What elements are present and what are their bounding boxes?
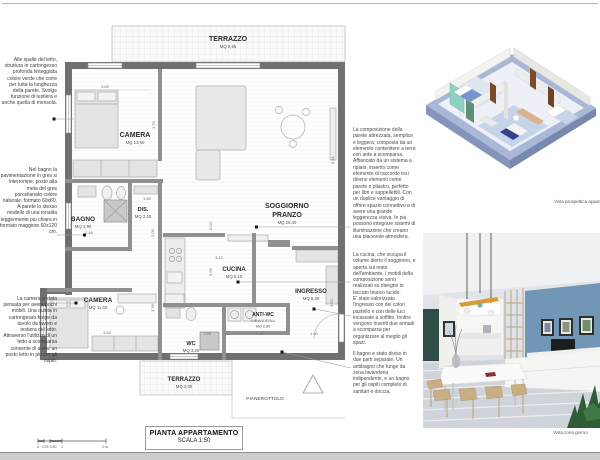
dimension-label: 2.00 bbox=[150, 228, 155, 237]
paragraph-bagno: Il bagno e stato diviso in due parti sep… bbox=[353, 351, 416, 395]
caption-interior: Vista zona giorno bbox=[553, 430, 588, 435]
dimension-label: 5.95 bbox=[208, 267, 213, 276]
svg-text:MQ 2,50: MQ 2,50 bbox=[256, 325, 271, 329]
room-label-bagno: BAGNO bbox=[71, 216, 95, 223]
stair-direction-triangle bbox=[303, 375, 323, 393]
dimension-label: 3.50 bbox=[329, 298, 334, 307]
dimension-label: 3.70 bbox=[151, 120, 156, 129]
caption-perspective: Vista prospettica appartamento bbox=[554, 199, 600, 204]
sheet-scale: SCALA 1:50 bbox=[146, 438, 242, 444]
svg-text:LAVANDERIA: LAVANDERIA bbox=[251, 319, 275, 323]
room-label-terrazzo-bottom: TERRAZZO bbox=[168, 377, 201, 383]
room-label-wc: WC bbox=[186, 341, 195, 347]
annotation-camera: La camera e stata pensata per avere poch… bbox=[0, 296, 57, 364]
dimension-label: 1.50 bbox=[310, 331, 319, 336]
dimension-label: 1.50 bbox=[143, 196, 152, 201]
annotation-bagno: Nel bagno la pavimentazione in gres si i… bbox=[0, 167, 57, 237]
svg-text:MQ 13,50: MQ 13,50 bbox=[126, 140, 145, 145]
annotation-headboard: Alle spalle del letto, struttura in cart… bbox=[0, 57, 57, 123]
svg-text:MQ 6,10: MQ 6,10 bbox=[226, 274, 243, 279]
dimension-label: 3.12 bbox=[215, 255, 224, 260]
room-label-terrazzo-top: TERRAZZO bbox=[209, 36, 248, 43]
room-label-soggiorno: SOGGIORNO bbox=[265, 203, 310, 210]
svg-text:MQ 3,20: MQ 3,20 bbox=[183, 348, 200, 353]
svg-text:MQ 8,95: MQ 8,95 bbox=[220, 44, 237, 49]
interior-render bbox=[423, 233, 600, 428]
room-label-ingresso: INGRESSO bbox=[295, 289, 327, 295]
room-label-cucina: CUCINA bbox=[222, 267, 246, 273]
svg-text:2 m: 2 m bbox=[102, 445, 108, 449]
svg-text:MQ 2,20: MQ 2,20 bbox=[135, 214, 152, 219]
dimension-label: 8.41 bbox=[330, 155, 335, 164]
presentation-sheet: TERRAZZO MQ 8,95 CAMERA MQ 13,50 SOGGIOR… bbox=[0, 0, 600, 460]
room-label-camera1: CAMERA bbox=[120, 132, 151, 139]
dimension-label: 3.65 bbox=[101, 84, 110, 89]
room-label-antiwc: ANTI-WC bbox=[252, 312, 274, 318]
dimension-label: 5.00 bbox=[208, 221, 213, 230]
room-label-pianerottolo: PIANEROTTOLO bbox=[246, 396, 284, 402]
sheet-title: PIANTA APPARTAMENTO bbox=[146, 430, 242, 437]
landing-outline bbox=[232, 361, 345, 418]
dimension-label: 1.98 bbox=[203, 331, 212, 336]
sheet-bottom-bar bbox=[0, 452, 600, 460]
svg-text:PRANZO: PRANZO bbox=[272, 212, 302, 219]
svg-text:MQ 5,30: MQ 5,30 bbox=[303, 296, 320, 301]
paragraph-cucina: La cucina, che occupa il volume dietro i… bbox=[353, 252, 416, 296]
paragraph-ingresso: E' stato valorizzato l'ingresso con dei … bbox=[353, 296, 416, 346]
svg-text:MQ 2,05: MQ 2,05 bbox=[176, 384, 193, 389]
title-block: PIANTA APPARTAMENTO SCALA 1:50 bbox=[145, 426, 243, 450]
perspective-render bbox=[420, 8, 600, 196]
svg-text:MQ 28,40: MQ 28,40 bbox=[278, 220, 297, 225]
dimension-label: 2,45 bbox=[85, 230, 94, 235]
svg-text:0,50: 0,50 bbox=[50, 445, 57, 449]
svg-text:0: 0 bbox=[37, 445, 39, 449]
dimension-label: 3.36 bbox=[150, 303, 155, 312]
svg-text:1: 1 bbox=[61, 445, 63, 449]
paragraph-parete-attrezzata: La composizione della parete attrezzata,… bbox=[353, 127, 416, 240]
svg-text:0,25: 0,25 bbox=[42, 445, 49, 449]
svg-text:MQ 11,50: MQ 11,50 bbox=[89, 305, 108, 310]
scale-bar: 0 0,25 0,50 1 2 m bbox=[37, 439, 108, 450]
dimension-label: 1.61 bbox=[256, 331, 265, 336]
room-label-dis: DIS. bbox=[138, 207, 149, 213]
room-label-camera2: CAMERA bbox=[84, 297, 113, 304]
dimension-label: 3.65 bbox=[103, 330, 112, 335]
svg-text:MQ 4,90: MQ 4,90 bbox=[75, 224, 92, 229]
